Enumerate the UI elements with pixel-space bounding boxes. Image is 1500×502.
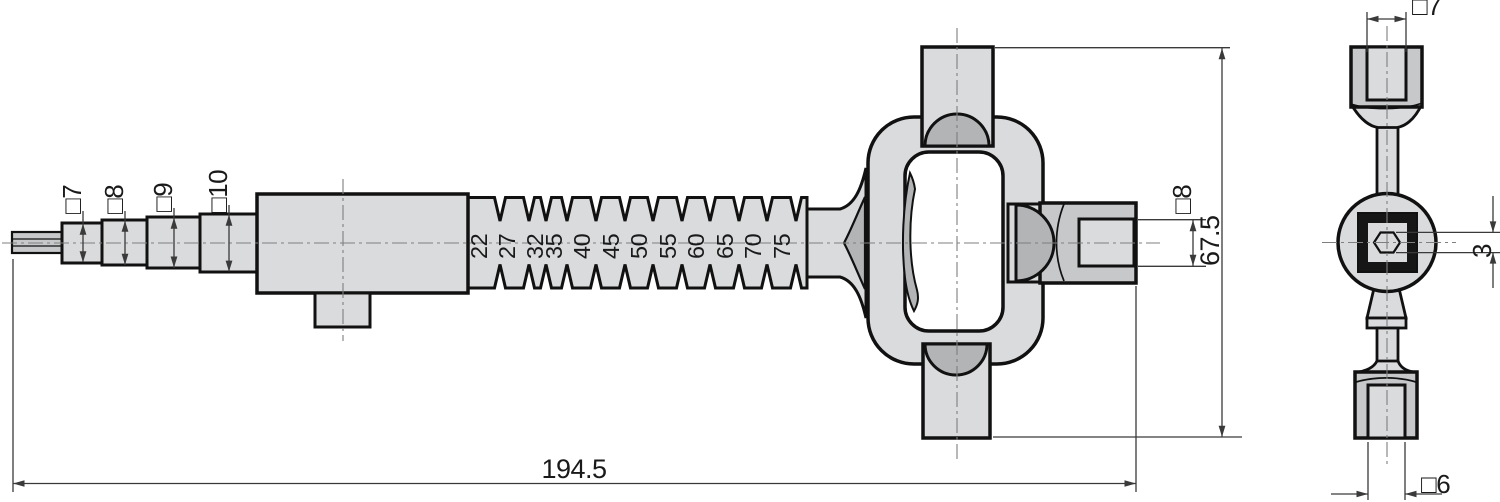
dim-step9-label: □9 [148, 183, 178, 212]
dim-socket8-label: □8 [1167, 185, 1197, 214]
dim-step8-label: □8 [99, 185, 129, 214]
dim-hex-label: 3 [1467, 244, 1497, 258]
scale-number: 35 [541, 233, 567, 259]
dim-step7-label: □7 [57, 185, 87, 214]
scale-number: 50 [626, 233, 652, 259]
scale-number: 70 [740, 233, 766, 259]
dim-end6-arrows [1357, 491, 1417, 498]
technical-drawing-page: □7 □8 □9 □10 22 27 32 35 40 45 50 55 60 … [0, 0, 1500, 502]
scale-number: 40 [569, 233, 595, 259]
bow-window [905, 152, 1003, 331]
scale-number: 60 [683, 233, 709, 259]
dim-length-label: 194.5 [541, 454, 606, 484]
scale-number: 55 [655, 233, 681, 259]
dim-end6-label: □6 [1421, 469, 1450, 499]
dim-step10-label: □10 [203, 170, 233, 213]
scale-number: 27 [494, 234, 520, 259]
drawing-canvas: □7 □8 □9 □10 22 27 32 35 40 45 50 55 60 … [0, 0, 1500, 502]
scale-number: 75 [769, 233, 795, 259]
scale-number: 45 [598, 233, 624, 259]
scale-number: 65 [712, 233, 738, 259]
dim-height-label: 67.5 [1195, 215, 1225, 266]
depth-scale: 22 27 32 35 40 45 50 55 60 65 70 75 [466, 233, 795, 259]
scale-number: 22 [466, 234, 492, 259]
dim-end7-label: □7 [1412, 0, 1441, 21]
